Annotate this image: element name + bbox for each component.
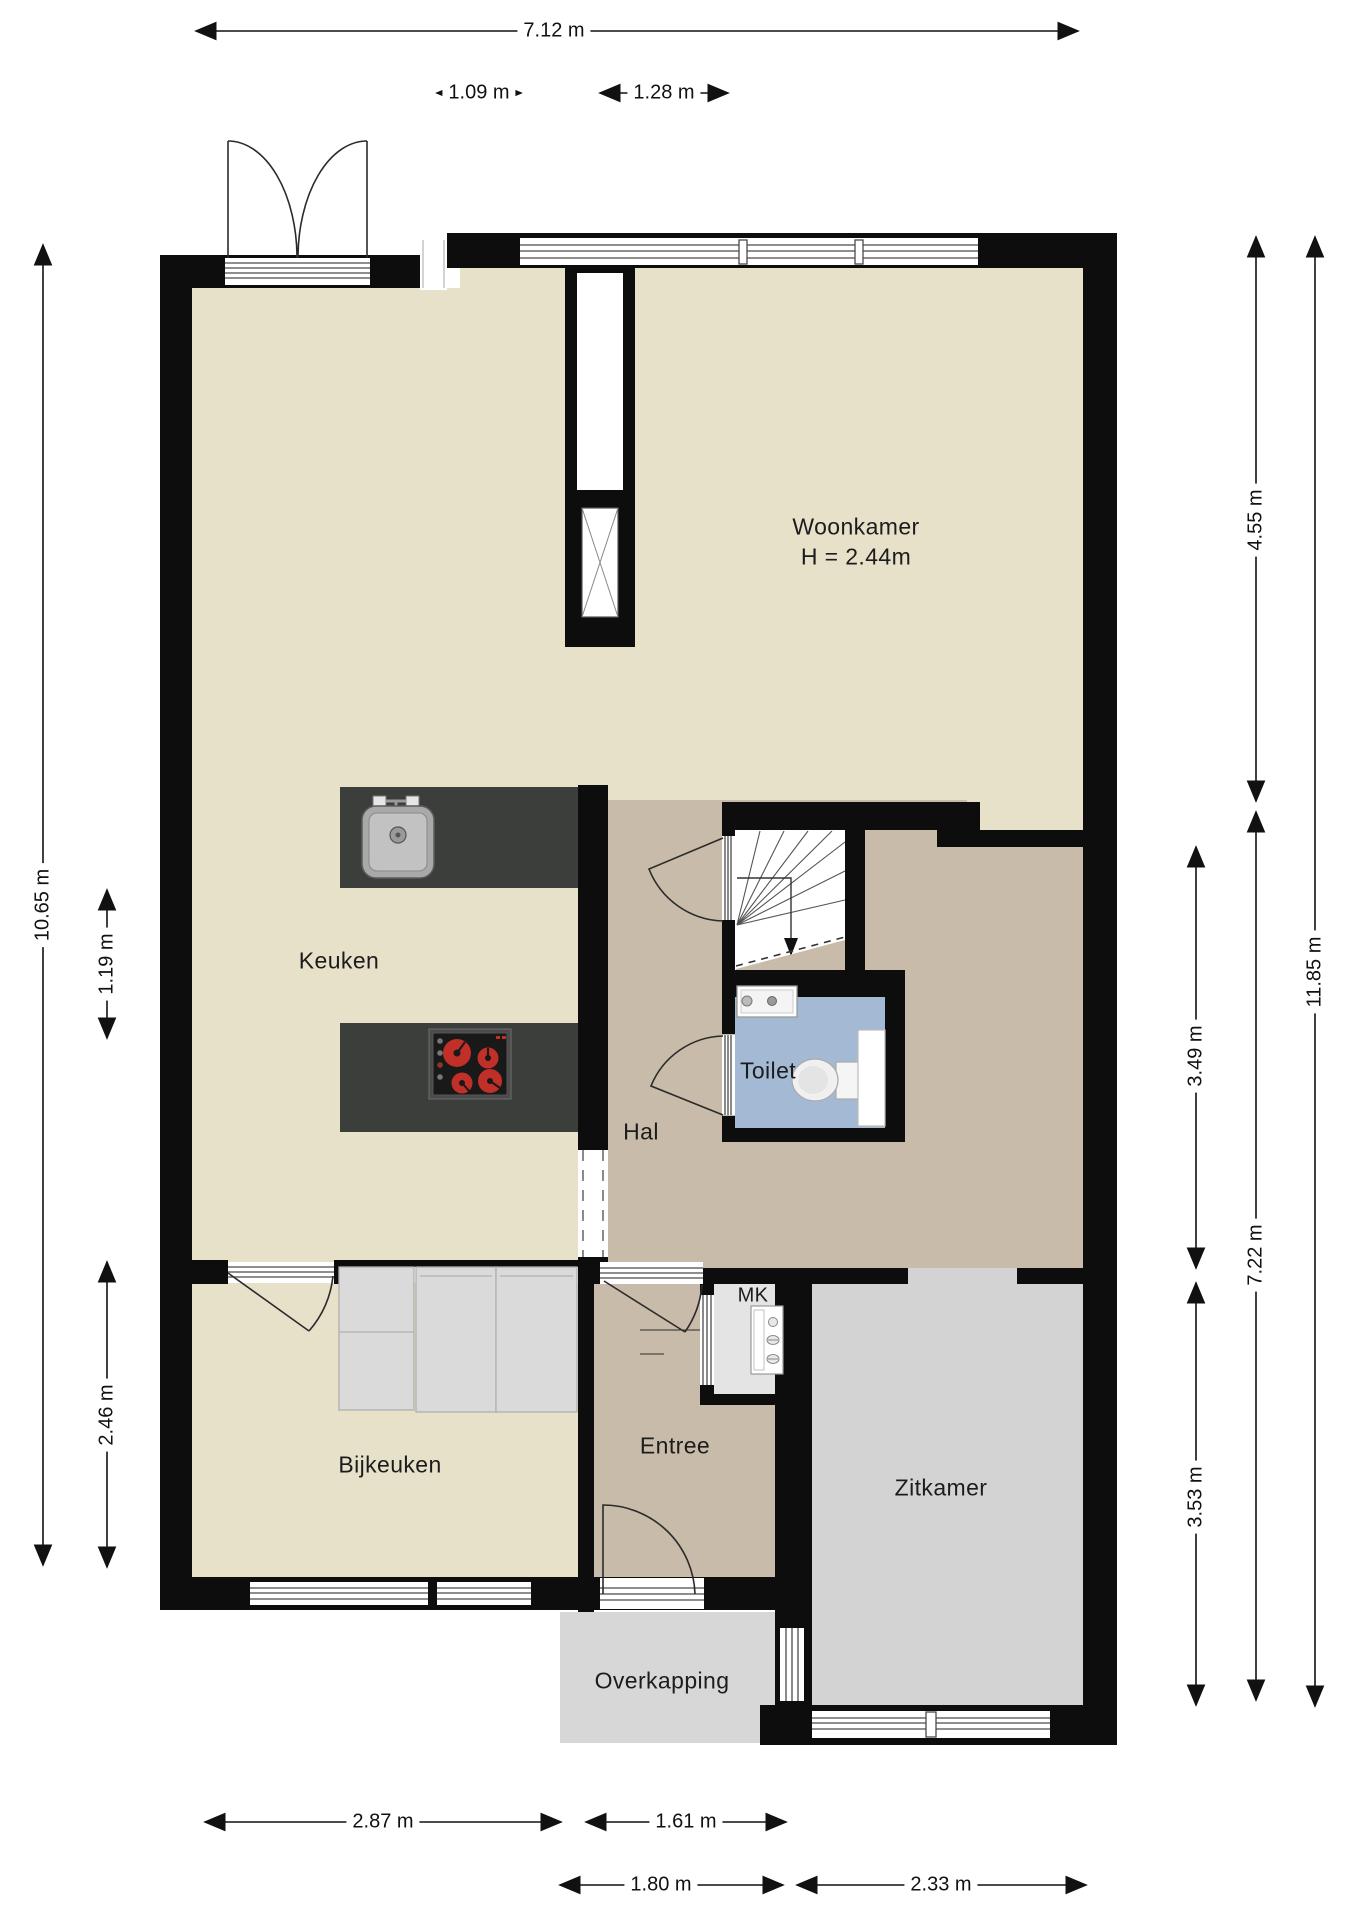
dim-right-a: 4.55 m	[1244, 483, 1269, 556]
meter-cabinet-icon	[751, 1306, 783, 1374]
dim-top-a: 1.09 m	[442, 81, 515, 106]
room-label-mk: MK	[738, 1285, 769, 1308]
dim-right-total: 11.85 m	[1303, 931, 1328, 1014]
toilet-bowl-icon	[792, 1059, 862, 1101]
staircase-icon	[735, 830, 845, 970]
room-label-toilet: Toilet	[740, 1058, 796, 1085]
dim-left-a: 1.19 m	[95, 927, 120, 1000]
dim-bottom-b: 1.61 m	[649, 1810, 722, 1835]
duct-icon	[577, 273, 623, 617]
room-label-bijkeuken: Bijkeuken	[338, 1452, 441, 1479]
dim-left-total: 10.65 m	[31, 863, 56, 947]
cooktop-icon	[429, 1029, 511, 1099]
dim-bottom-d: 2.33 m	[904, 1873, 977, 1898]
room-label-woonkamer: Woonkamer	[792, 514, 919, 541]
room-label-hal: Hal	[623, 1119, 659, 1146]
plan-linework	[0, 0, 1358, 1920]
dim-width-total: 7.12 m	[517, 19, 590, 44]
room-label-entree: Entree	[640, 1433, 710, 1460]
dim-right-b: 7.22 m	[1244, 1218, 1269, 1291]
floor-plan: Woonkamer H = 2.44m Keuken Hal Toilet MK…	[0, 0, 1358, 1920]
dim-bottom-a: 2.87 m	[346, 1810, 419, 1835]
dim-top-b: 1.28 m	[627, 81, 700, 106]
sink-icon	[362, 796, 434, 878]
openings	[225, 238, 1050, 1738]
room-label-zitkamer: Zitkamer	[895, 1475, 988, 1502]
dim-right-d: 3.53 m	[1184, 1460, 1209, 1533]
dim-left-b: 2.46 m	[95, 1378, 120, 1451]
room-label-overkapping: Overkapping	[595, 1668, 730, 1695]
washbasin-icon	[737, 986, 797, 1017]
room-height-woonkamer: H = 2.44m	[801, 544, 911, 571]
dim-bottom-c: 1.80 m	[624, 1873, 697, 1898]
room-label-keuken: Keuken	[299, 948, 379, 975]
dim-right-c: 3.49 m	[1184, 1019, 1209, 1092]
washer-units	[339, 1267, 577, 1412]
toilet-cabinet	[858, 1030, 885, 1126]
